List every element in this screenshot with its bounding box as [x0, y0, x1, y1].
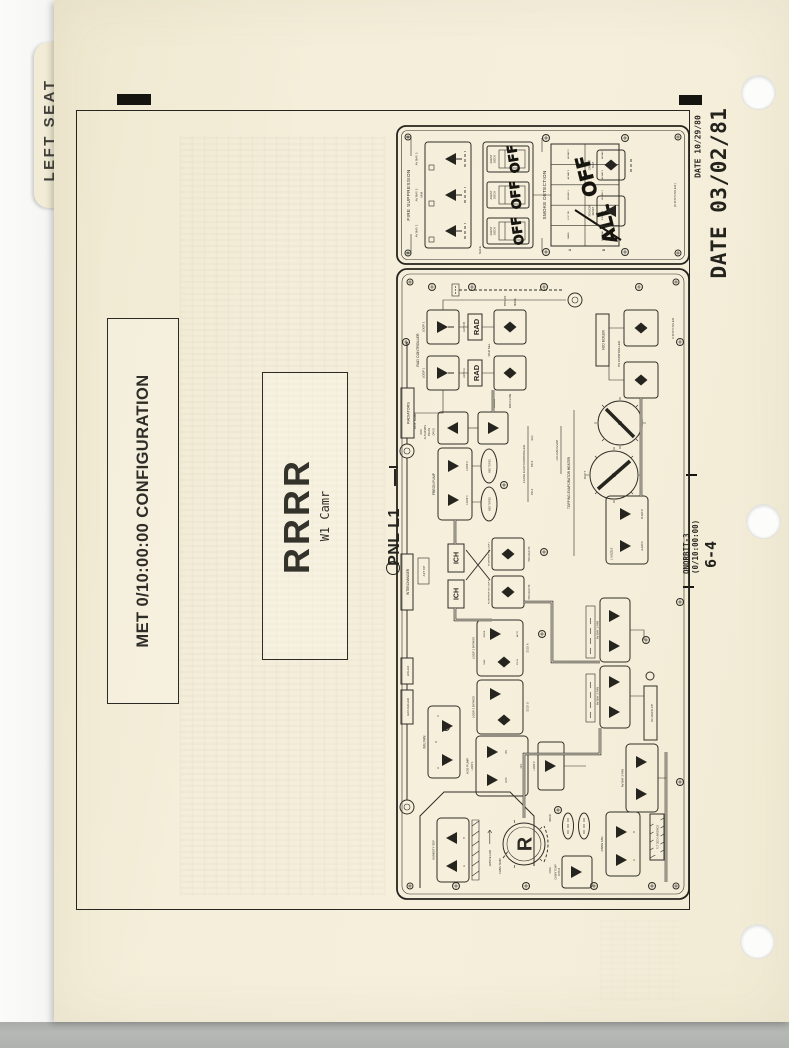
- date-stamp-large: DATE 03/02/81: [707, 108, 731, 279]
- svg-text:LOOP 1: LOOP 1: [465, 495, 469, 505]
- ich-talkback-2: ICH: [454, 588, 461, 600]
- page-subtitle: W1 Camr: [318, 491, 332, 542]
- knob-r-label: R: [515, 836, 537, 851]
- svg-text:DECK B: DECK B: [527, 702, 530, 712]
- met-configuration-label: MET 0/10:00:00 CONFIGURATION: [134, 374, 153, 647]
- svg-text:MODE: MODE: [513, 298, 517, 306]
- svg-text:B: B: [633, 831, 636, 833]
- handwritten-off-2: OFF: [508, 180, 526, 210]
- l-nozzle-label: L NOZZLE: [610, 547, 614, 560]
- date-large-wrap: DATE 03/02/81: [699, 92, 739, 294]
- rad-flow-label: RAD FLOW: [508, 394, 512, 409]
- av-bay3-label: AV BAY 3: [415, 152, 419, 165]
- mount-hole-icon: [407, 883, 413, 889]
- svg-text:LOOP 1: LOOP 1: [471, 761, 474, 771]
- toggle-switch-icon: [448, 494, 459, 506]
- svg-text:ALTERNATE: ALTERNATE: [424, 424, 427, 439]
- rotary-sel-icon: [504, 368, 517, 379]
- imu-fan-label: IMU FAN: [423, 735, 427, 749]
- svg-text:B: B: [435, 741, 438, 743]
- av-bay1-fan-label: AV BAY 1 FAN: [596, 621, 600, 639]
- svg-text:ON: ON: [505, 750, 508, 754]
- freon-pump-label: FREON PUMP: [432, 472, 436, 495]
- svg-text:A: A: [437, 767, 440, 769]
- svg-text:H2O TO FES: H2O TO FES: [490, 459, 492, 473]
- svg-text:RESET: RESET: [591, 206, 595, 215]
- safe-label: SAFE: [478, 246, 482, 254]
- toggle-switch-icon: [437, 367, 448, 379]
- svg-text:FLOW PROP VLV LOOP 2: FLOW PROP VLV LOOP 2: [489, 579, 491, 604]
- svg-text:A: A: [633, 859, 636, 861]
- fire-switch-3: [429, 151, 465, 170]
- toggle-switch-icon: [609, 640, 620, 652]
- cabin-fan-label: CABIN FAN: [600, 837, 604, 852]
- toggle-switch-icon: [447, 422, 458, 434]
- main-panel-wrap: H2O CHILLER LCG HX INTERCHANGER AFT CP R…: [394, 266, 692, 902]
- svg-text:PRI B: PRI B: [531, 460, 534, 467]
- loop1-bypass-label: LOOP 1 BYPASS: [472, 637, 476, 659]
- fire-suppression-header: FIRE SUPPRESSION: [406, 169, 411, 220]
- svg-text:AGENT: AGENT: [489, 154, 493, 163]
- handwritten-off-1: OFF: [509, 215, 528, 246]
- scanned-page: { "colors":{"paper":"#f3edd9","ink":"#2c…: [0, 0, 789, 1048]
- h2o-pump-label: H2O PUMP: [466, 758, 470, 774]
- svg-text:DECK A: DECK A: [527, 643, 530, 653]
- rad-talkback-1: RAD: [472, 364, 481, 381]
- handwritten-off-3: OFF: [505, 143, 524, 174]
- svg-text:COOL: COOL: [549, 866, 552, 873]
- svg-text:AV BAY 1: AV BAY 1: [567, 190, 570, 200]
- page-title: RRRR: [279, 458, 315, 574]
- cabin-temp-knob: R: [503, 820, 548, 868]
- svg-text:RAD: RAD: [483, 659, 486, 664]
- screw-icon: [543, 249, 550, 256]
- av-bay2-label: AV BAY 2: [415, 188, 419, 201]
- handwritten-off-big: OFF: [571, 153, 603, 199]
- fire-switch-1: [429, 223, 465, 242]
- hi-load-label: HI LOAD EVAP: [555, 440, 559, 461]
- svg-text:DISCH: DISCH: [493, 191, 497, 199]
- loop2-bypass-label: LOOP 2 BYPASS: [472, 696, 476, 718]
- svg-text:H2O: H2O: [420, 429, 423, 434]
- sensor-reset-label: SENSOR: [588, 205, 592, 216]
- svg-text:AUTO: AUTO: [516, 631, 519, 637]
- svg-text:LOOP 2: LOOP 2: [533, 761, 536, 771]
- flt-deck-avionics: FLT DECK AVIONICS: [650, 814, 664, 860]
- svg-text:OFF: OFF: [520, 763, 523, 768]
- toggle-switch-icon: [446, 860, 457, 872]
- svg-text:CABIN: CABIN: [567, 232, 570, 239]
- svg-text:LOOP 1: LOOP 1: [422, 367, 426, 378]
- toggle-switch-icon: [620, 540, 631, 552]
- footer-met: (0/10:00:00): [691, 520, 700, 574]
- topping-evap-label: TOPPING EVAPORATOR HEATER: [567, 456, 571, 509]
- svg-text:PAYLOAD HX: PAYLOAD HX: [528, 584, 531, 599]
- svg-text:AGENT: AGENT: [489, 226, 493, 235]
- out-temp-label: OUT TEMP: [413, 413, 417, 429]
- av-bay2-fan-label: AV BAY 2 FAN: [596, 687, 600, 705]
- svg-text:SEC: SEC: [531, 435, 534, 440]
- svg-text:L FLT DK: L FLT DK: [568, 210, 570, 220]
- fire-smoke-panel-drawing: FIRE SUPPRESSION AV BAY 1 AV BAY 2 AV BA…: [395, 124, 691, 266]
- registration-mark-left: [117, 94, 151, 105]
- av-bay3-fan-label: AV BAY 3 FAN: [621, 769, 625, 787]
- circuit-test-switch-icon: [605, 160, 618, 171]
- svg-text:WARM: WARM: [549, 814, 552, 821]
- circuit-test-label: CIRCUIT: [588, 159, 592, 170]
- svg-text:AV BAY 2: AV BAY 2: [567, 169, 570, 179]
- aft-cp-label: AFT CP: [422, 566, 426, 577]
- arm-label: ARM: [420, 192, 424, 198]
- svg-text:B AUTO: B AUTO: [640, 509, 644, 518]
- h2o-boiler-label: H2O BOILER: [602, 329, 606, 349]
- svg-text:AGENT: AGENT: [489, 190, 493, 199]
- footer-page-number: 6-4: [702, 541, 720, 568]
- rad-controller-label: RAD CONTROLLER: [416, 333, 420, 367]
- scanner-bed-strip: [0, 1022, 789, 1048]
- rad-talkback-2: RAD: [472, 318, 481, 335]
- punch-hole-bottom: [740, 924, 775, 959]
- title-box-wrap: RRRR W1 Camr: [262, 372, 346, 658]
- svg-text:B: B: [463, 837, 466, 839]
- svg-text:DISCH: DISCH: [493, 227, 497, 235]
- svg-text:GPC: GPC: [505, 777, 508, 782]
- fire-switch-2: [429, 187, 465, 206]
- punch-hole-top: [741, 75, 776, 110]
- svg-text:TEST: TEST: [591, 161, 595, 168]
- row-b-label: B: [602, 248, 606, 251]
- toggle-switch-icon: [490, 628, 501, 640]
- svg-text:A AUTO: A AUTO: [640, 541, 644, 550]
- met-box-wrap: MET 0/10:00:00 CONFIGURATION: [107, 318, 177, 702]
- handwritten-all: ALL: [592, 202, 623, 245]
- flash-evap-label: FLASH EVAP CONTROLLER: [522, 445, 526, 483]
- row-a-label: A: [568, 248, 572, 251]
- svg-text:PRI A: PRI A: [531, 488, 534, 495]
- svg-text:PRESS: PRESS: [428, 427, 431, 436]
- radiators-label: RADIATORS: [407, 402, 411, 424]
- tab-label-wrap: LEFT SEAT: [34, 50, 64, 210]
- svg-text:A: A: [463, 865, 466, 867]
- ich-talkback-1: ICH: [454, 552, 461, 564]
- valve-switch-icon: [502, 549, 515, 560]
- interchanger-label: INTERCHANGER: [406, 568, 410, 595]
- rotary-knob-1: [594, 397, 646, 449]
- svg-text:CNTLR: CNTLR: [558, 868, 561, 877]
- svg-text:OPEN: OPEN: [433, 428, 436, 435]
- svg-text:LOOP 2: LOOP 2: [465, 461, 469, 471]
- humidity-sep-label: HUMIDITY SEP: [432, 840, 436, 860]
- svg-text:FLT DECK AVIONICS: FLT DECK AVIONICS: [657, 825, 660, 850]
- svg-text:MODE: MODE: [484, 630, 486, 637]
- svg-text:LOOP 2: LOOP 2: [422, 321, 426, 332]
- svg-text:H2O TO FES: H2O TO FES: [490, 497, 492, 511]
- toggle-switch-icon: [442, 754, 453, 766]
- cabin-temp-label: CABIN TEMP: [498, 858, 502, 874]
- svg-text:ICH B: ICH B: [517, 659, 519, 665]
- top-panel-wrap: FIRE SUPPRESSION AV BAY 1 AV BAY 2 AV BA…: [395, 124, 691, 266]
- svg-text:BYPASS: BYPASS: [503, 296, 507, 306]
- svg-text:PAYLOAD HX: PAYLOAD HX: [528, 546, 531, 561]
- av-rack-cp-label: AV RACK CP: [650, 704, 654, 722]
- continued-label: CONTINUED: [671, 317, 675, 339]
- pnl-l1-drawing: H2O CHILLER LCG HX INTERCHANGER AFT CP R…: [394, 266, 692, 902]
- tab-label: LEFT SEAT: [41, 78, 58, 181]
- svg-text:AV BAY 2: AV BAY 2: [601, 169, 604, 179]
- waste-h2o-label: WASTE H2O: [488, 849, 492, 866]
- hx-controller-label: HX CONTROLLER: [617, 340, 621, 367]
- smoke-detection-header: SMOKE DETECTION: [542, 171, 547, 220]
- av-bay1-label: AV BAY 1: [415, 224, 419, 237]
- svg-text:DISCH: DISCH: [493, 155, 497, 163]
- rotary-knob-2: [586, 447, 642, 503]
- continued-label: (CONTINUED): [673, 183, 677, 207]
- rad-sel-label: RAD SEL: [487, 343, 491, 356]
- punch-hole-middle: [746, 504, 781, 539]
- svg-text:FLOW PROP VLV LOOP 1: FLOW PROP VLV LOOP 1: [489, 541, 491, 566]
- svg-text:AV BAY 3: AV BAY 3: [567, 149, 570, 159]
- h2o-chiller-label: H2O CHILLER: [406, 698, 410, 716]
- lcg-hx-label: LCG HX: [406, 666, 410, 677]
- svg-text:C: C: [437, 715, 440, 717]
